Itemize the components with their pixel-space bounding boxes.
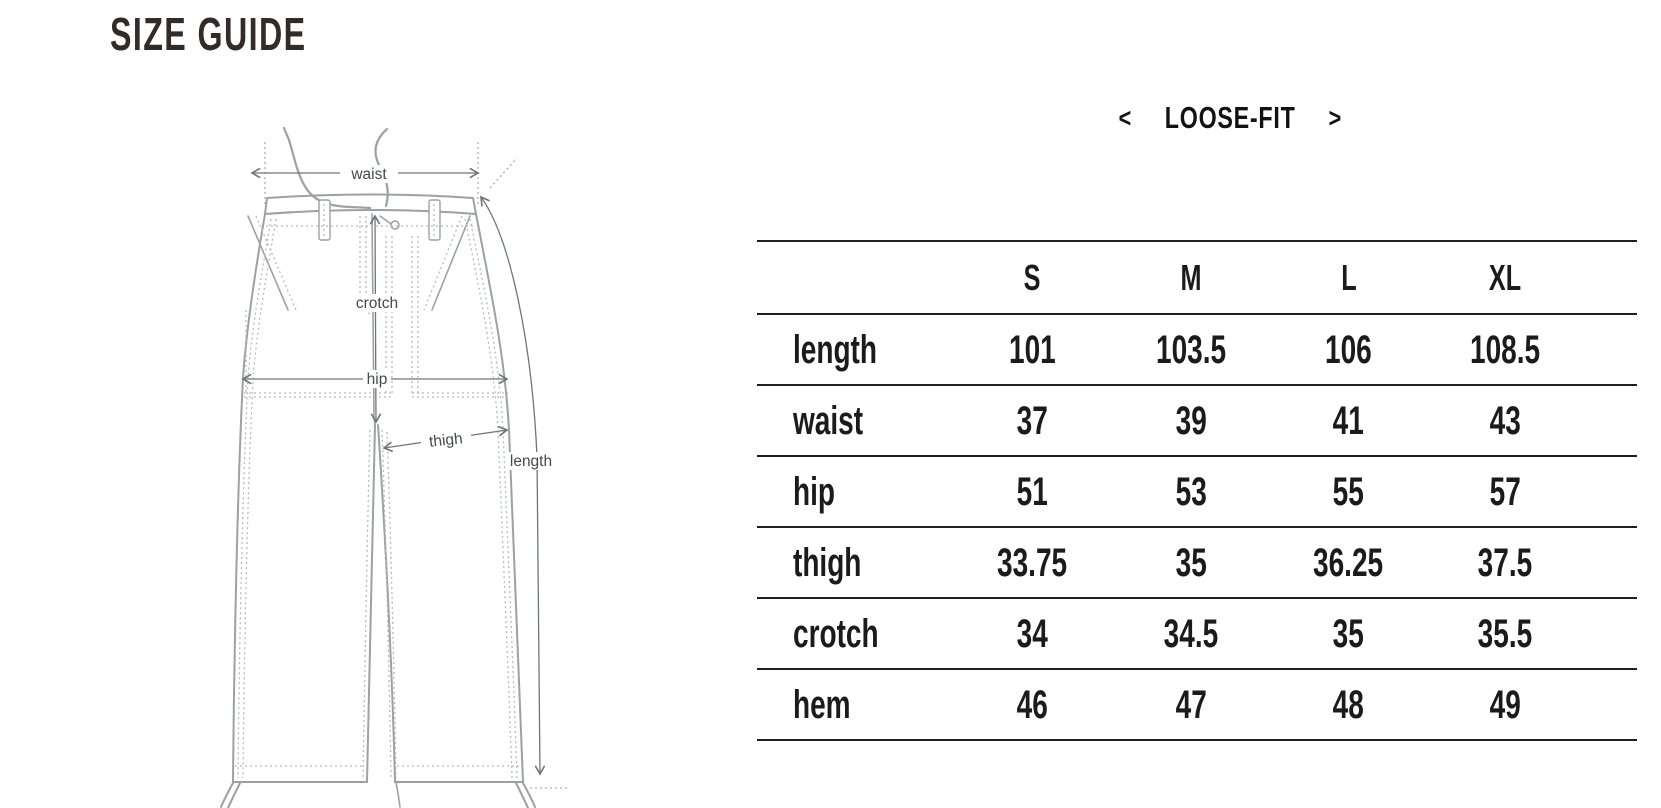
fit-label: LOOSE-FIT bbox=[1165, 102, 1296, 134]
table-row: crotch 34 34.5 35 35.5 bbox=[757, 597, 1637, 668]
size-value-cell: 34 bbox=[953, 614, 1112, 654]
size-value-cell: 33.75 bbox=[953, 543, 1112, 583]
diagram-label-hip: hip bbox=[367, 371, 388, 388]
size-value-cell: 47 bbox=[1112, 685, 1270, 725]
column-header-s: S bbox=[953, 260, 1112, 296]
table-header-row: S M L XL bbox=[757, 242, 1637, 313]
size-value-cell: 51 bbox=[953, 472, 1112, 512]
row-label: waist bbox=[757, 401, 953, 441]
size-value-cell: 106 bbox=[1270, 330, 1427, 370]
diagram-label-waist: waist bbox=[350, 166, 387, 183]
size-value-cell: 39 bbox=[1112, 401, 1270, 441]
diagram-label-crotch: crotch bbox=[356, 295, 398, 312]
row-label: crotch bbox=[757, 614, 953, 654]
table-row: hem 46 47 48 49 bbox=[757, 668, 1637, 739]
diagram-label-length: length bbox=[510, 453, 552, 470]
size-value-cell: 53 bbox=[1112, 472, 1270, 512]
fit-selector: <LOOSE-FIT> bbox=[790, 102, 1661, 134]
table-row: length 101 103.5 106 108.5 bbox=[757, 313, 1637, 384]
size-value-cell: 108.5 bbox=[1427, 330, 1583, 370]
size-value-cell: 57 bbox=[1427, 472, 1583, 512]
size-value-cell: 35 bbox=[1112, 543, 1270, 583]
size-guide-page: SIZE GUIDE bbox=[0, 0, 1661, 808]
size-value-cell: 41 bbox=[1270, 401, 1427, 441]
size-value-cell: 35.5 bbox=[1427, 614, 1583, 654]
row-label: thigh bbox=[757, 543, 953, 583]
size-value-cell: 55 bbox=[1270, 472, 1427, 512]
row-label: hip bbox=[757, 472, 953, 512]
table-row: hip 51 53 55 57 bbox=[757, 455, 1637, 526]
table-row: waist 37 39 41 43 bbox=[757, 384, 1637, 455]
row-label: length bbox=[757, 330, 953, 370]
size-chart-table: S M L XL length 101 103.5 106 108.5 wais… bbox=[757, 240, 1637, 741]
next-fit-icon[interactable]: > bbox=[1329, 102, 1342, 134]
pants-measurement-diagram: waist crotch hip thigh length bbox=[200, 112, 620, 808]
page-title-text: SIZE GUIDE bbox=[110, 11, 307, 57]
column-header-xl: XL bbox=[1427, 260, 1583, 296]
size-value-cell: 103.5 bbox=[1112, 330, 1270, 370]
size-value-cell: 101 bbox=[953, 330, 1112, 370]
size-value-cell: 48 bbox=[1270, 685, 1427, 725]
size-value-cell: 46 bbox=[953, 685, 1112, 725]
table-row: thigh 33.75 35 36.25 37.5 bbox=[757, 526, 1637, 597]
page-title: SIZE GUIDE bbox=[110, 11, 391, 57]
prev-fit-icon[interactable]: < bbox=[1119, 102, 1132, 134]
pants-outline bbox=[221, 128, 535, 808]
diagram-label-thigh: thigh bbox=[428, 430, 463, 450]
size-value-cell: 35 bbox=[1270, 614, 1427, 654]
column-header-l: L bbox=[1270, 260, 1427, 296]
size-value-cell: 37 bbox=[953, 401, 1112, 441]
row-label: hem bbox=[757, 685, 953, 725]
size-value-cell: 36.25 bbox=[1270, 543, 1427, 583]
size-value-cell: 37.5 bbox=[1427, 543, 1583, 583]
size-value-cell: 49 bbox=[1427, 685, 1583, 725]
size-value-cell: 43 bbox=[1427, 401, 1583, 441]
size-value-cell: 34.5 bbox=[1112, 614, 1270, 654]
column-header-m: M bbox=[1112, 260, 1270, 296]
pants-stitching bbox=[235, 204, 521, 778]
